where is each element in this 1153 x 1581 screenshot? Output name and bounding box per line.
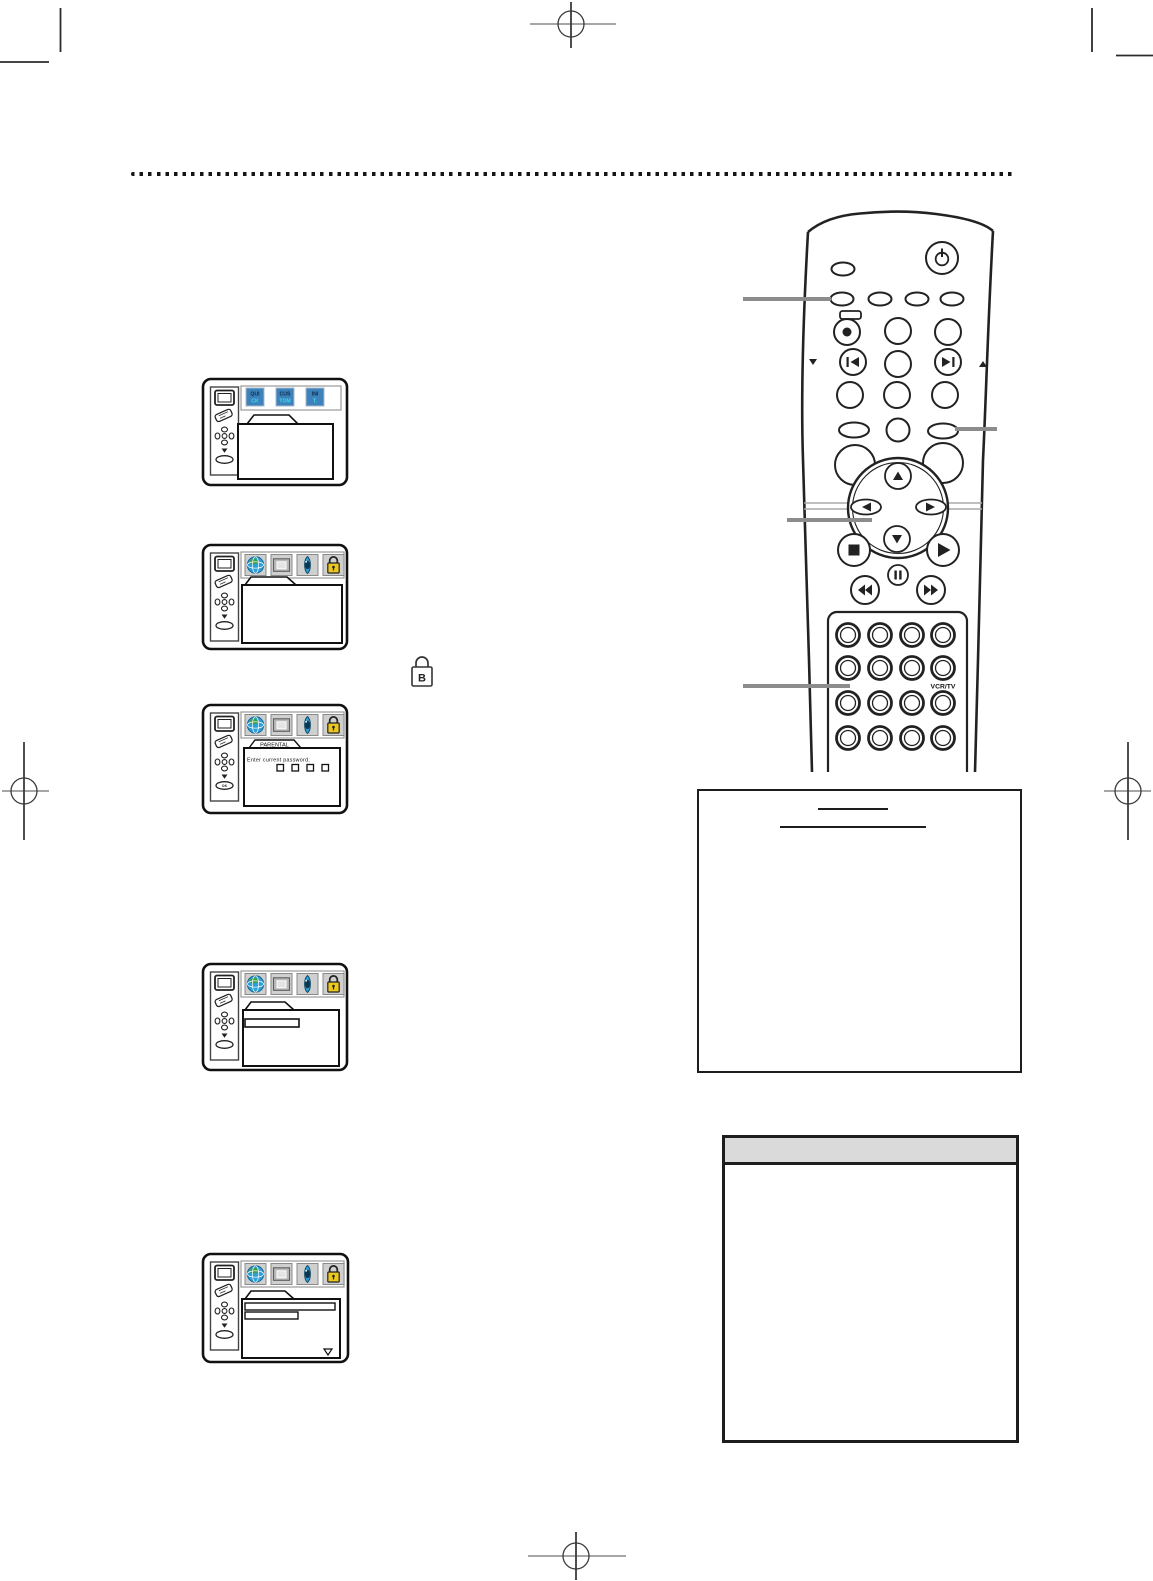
underline-rule: [780, 826, 926, 828]
registration-mark-top-center: [530, 2, 616, 48]
svg-text:TOM: TOM: [279, 398, 290, 404]
osd-screen-list: [201, 1252, 351, 1366]
folder-tab: [245, 1291, 294, 1299]
record-button: [834, 319, 860, 345]
svg-text:INI: INI: [312, 392, 319, 398]
underline-rule: [818, 808, 888, 810]
next-track-button: [935, 349, 961, 375]
padlock-glyph: B: [418, 673, 426, 685]
folder-tab: [247, 415, 298, 424]
pause-button: [888, 565, 908, 585]
ok-button-label: OK: [222, 784, 228, 788]
prev-track-button: [840, 349, 866, 375]
round-button: [884, 382, 910, 408]
callout-line-status-button: [955, 427, 997, 431]
vcr-tv-label: VCR/TV: [931, 684, 956, 691]
list-bar-narrow: [245, 1312, 298, 1319]
crop-mark-top-right: [1092, 8, 1153, 56]
up-button: [885, 463, 911, 489]
osd-screen-selection: [201, 962, 351, 1074]
registration-mark-left-middle: [2, 742, 49, 840]
callout-line-top-button: [743, 297, 831, 301]
manual-page: QUI CK CUS TOM INI T. OK PARENTAL Enter: [0, 0, 1153, 1581]
folder-panel: [242, 585, 342, 643]
registration-mark-bottom-center: [528, 1532, 626, 1580]
top-oval-button: [832, 263, 855, 276]
down-button: [884, 526, 910, 552]
svg-text:CK: CK: [251, 398, 259, 404]
round-button: [887, 419, 910, 442]
inline-padlock-icon: B: [407, 650, 437, 690]
hints-box: [697, 789, 1022, 1073]
round-button: [932, 382, 958, 408]
list-bar-wide: [245, 1303, 335, 1310]
tab-quick: QUI CK: [246, 388, 264, 406]
callout-line-nav: [787, 518, 872, 522]
oval-button: [839, 423, 869, 438]
registration-mark-right-middle: [1104, 742, 1151, 840]
osd-screen-main-menu: QUI CK CUS TOM INI T.: [201, 377, 351, 489]
svg-text:QUI: QUI: [250, 392, 260, 398]
osd-screen-parental-password: OK PARENTAL Enter current password.: [201, 703, 351, 817]
left-button: [851, 500, 881, 515]
round-button: [885, 351, 911, 377]
note-box-header: [725, 1138, 1016, 1165]
folder-tab: [245, 577, 296, 585]
power-button: [926, 242, 958, 274]
folder-tab: [245, 1002, 294, 1010]
note-box: [722, 1135, 1019, 1443]
folder-panel: [238, 424, 333, 479]
svg-text:CUS: CUS: [280, 392, 291, 398]
round-button: [935, 319, 961, 345]
dotted-section-rule: [131, 172, 1016, 176]
osd-screen-custom-menu: [201, 543, 351, 655]
svg-text:T.: T.: [313, 398, 318, 404]
rewind-button: [851, 576, 879, 604]
function-oval-row: [831, 293, 964, 306]
tab-init: INI T.: [306, 388, 324, 406]
fast-forward-button: [917, 576, 945, 604]
callout-line-number-pad: [743, 684, 850, 688]
right-button: [916, 500, 946, 515]
round-button: [837, 382, 863, 408]
play-button: [927, 534, 959, 566]
password-prompt: Enter current password.: [247, 758, 310, 764]
tab-custom: CUS TOM: [276, 388, 294, 406]
round-button: [885, 318, 911, 344]
crop-mark-top-left: [0, 8, 61, 62]
remote-control: VCR/TV: [740, 200, 1000, 772]
channel-down-mark: [809, 359, 817, 365]
status-oval-button: [928, 424, 958, 439]
indicator-window: [840, 311, 861, 319]
selection-bar: [245, 1019, 299, 1027]
stop-button: [838, 534, 870, 566]
